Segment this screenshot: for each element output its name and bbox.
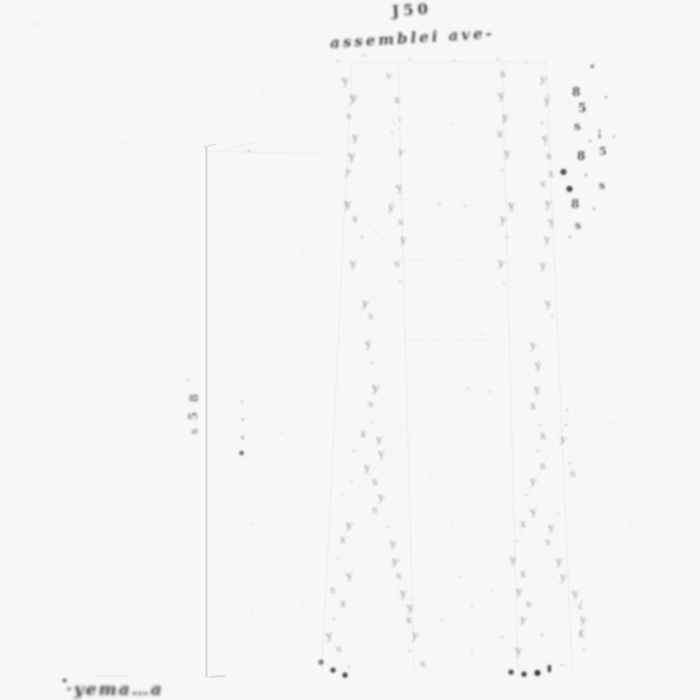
- drawing-line: [506, 130, 549, 200]
- tower-linework: [0, 0, 700, 700]
- handwritten-footer-scribble: ·yema…a: [66, 680, 164, 700]
- drawing-line: [203, 144, 216, 147]
- drawing-line: [509, 340, 561, 430]
- drawing-line: [345, 130, 400, 200]
- drawing-line: [329, 520, 412, 600]
- drawing-line: [222, 142, 258, 150]
- drawing-line: [352, 62, 400, 130]
- scanned-drawing-page: J50 assemblei ave- ‥·~·-··yvsy▪yxyýs·y·y…: [0, 0, 700, 700]
- handwritten-title-number: J50: [391, 0, 432, 20]
- drawing-line: [208, 151, 320, 154]
- drawing-line: [506, 200, 555, 260]
- drawing-line: [322, 60, 352, 670]
- drawing-line: [398, 62, 414, 670]
- drawing-line: [209, 676, 226, 677]
- drawing-line: [338, 340, 407, 430]
- drawing-line: [518, 600, 569, 668]
- drawing-line: [502, 60, 518, 670]
- drawing-line: [345, 200, 403, 260]
- drawing-line: [514, 430, 562, 520]
- drawing-line: [329, 430, 407, 520]
- drawing-line: [546, 60, 572, 670]
- drawing-line: [514, 520, 569, 600]
- drawing-line: [502, 62, 549, 130]
- drawing-line: [338, 260, 403, 340]
- drawing-line: [322, 600, 412, 668]
- drawing-line: [509, 260, 554, 340]
